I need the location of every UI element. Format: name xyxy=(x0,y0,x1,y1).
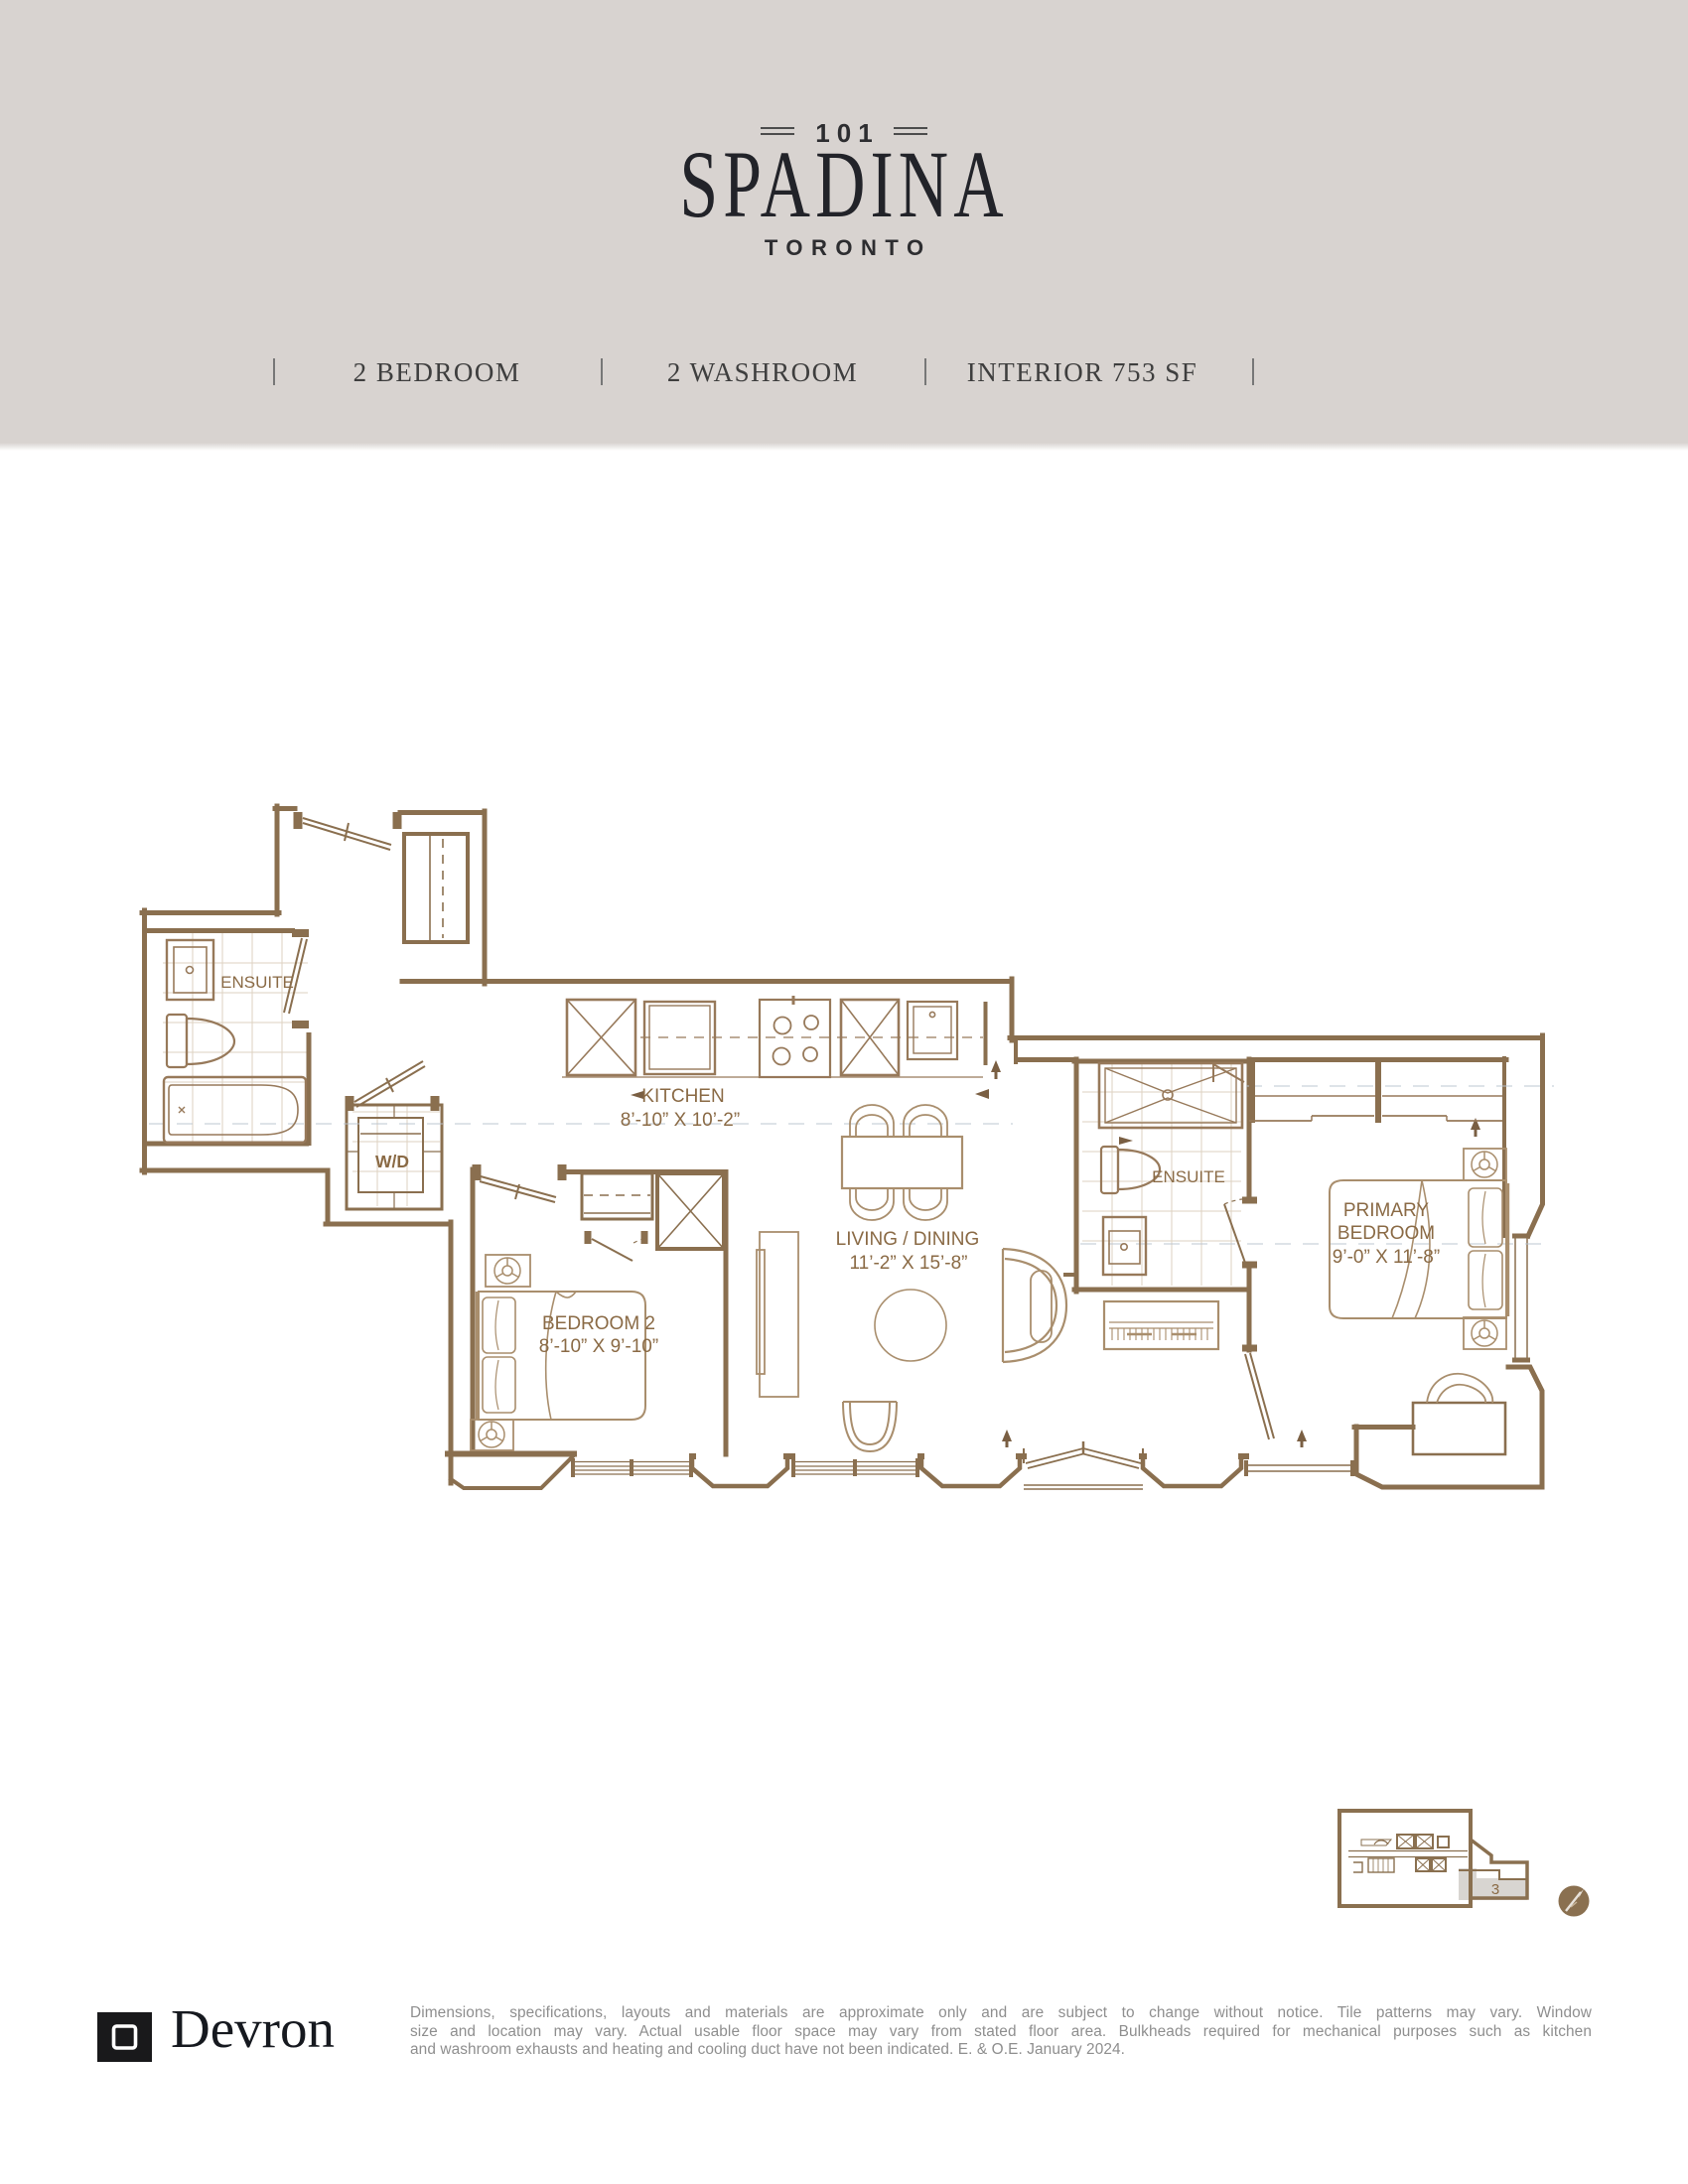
svg-text:11’-2” X 15’-8”: 11’-2” X 15’-8” xyxy=(850,1253,968,1274)
svg-text:ENSUITE: ENSUITE xyxy=(220,973,294,992)
svg-text:8’-10” X 9’-10”: 8’-10” X 9’-10” xyxy=(539,1336,658,1357)
svg-text:KITCHEN: KITCHEN xyxy=(641,1086,724,1107)
svg-text:LIVING / DINING: LIVING / DINING xyxy=(836,1229,980,1250)
svg-text:W/D: W/D xyxy=(375,1152,409,1171)
svg-text:PRIMARY: PRIMARY xyxy=(1343,1200,1430,1221)
svg-text:ENSUITE: ENSUITE xyxy=(1152,1167,1225,1186)
svg-text:8’-10” X 10’-2”: 8’-10” X 10’-2” xyxy=(621,1110,740,1131)
svg-text:9’-0” X 11’-8”: 9’-0” X 11’-8” xyxy=(1333,1247,1440,1268)
svg-text:BEDROOM 2: BEDROOM 2 xyxy=(542,1313,655,1334)
svg-text:3: 3 xyxy=(1491,1881,1499,1898)
svg-text:BEDROOM: BEDROOM xyxy=(1337,1223,1435,1244)
